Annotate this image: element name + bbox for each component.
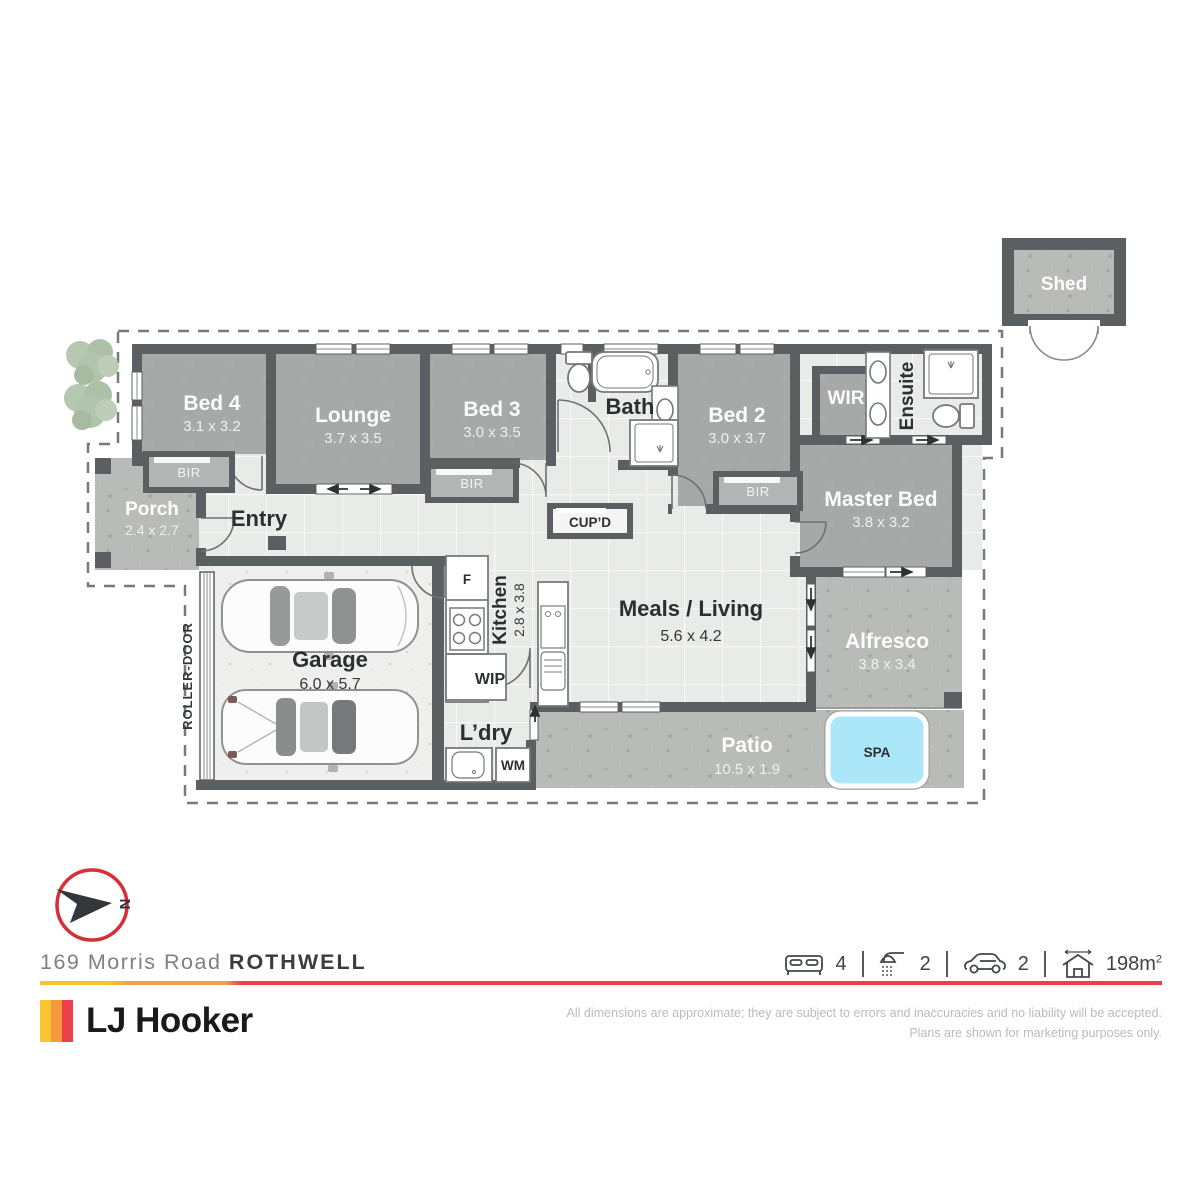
label-entry: Entry [231,506,288,531]
tree-icons [64,339,119,430]
address-suburb: ROTHWELL [229,950,367,974]
dims-lounge: 3.7 x 3.5 [324,430,382,447]
label-bir-bed2: BIR [746,484,769,499]
roller-door [200,572,214,780]
dims-garage: 6.0 x 5.7 [299,676,360,693]
brand-logo: LJ Hooker [40,1000,253,1042]
brand-gradient-rule [40,981,1162,985]
dims-patio: 10.5 x 1.9 [714,761,780,778]
laundry-tub [446,748,492,782]
cars-count: 2 [1018,953,1029,976]
disclaimer-line2: Plans are shown for marketing purposes o… [562,1023,1162,1043]
shed [1002,238,1126,360]
compass-north-label: N [116,899,133,910]
dims-master: 3.8 x 3.2 [852,514,910,531]
label-wir: WIR [828,388,865,409]
car-sports [222,682,418,772]
cooktop [450,608,484,650]
floorplan-drawing: Shed Bed 4 3.1 x 3.2 Lounge 3.7 x 3.5 Be… [0,0,1200,940]
dims-bed4: 3.1 x 3.2 [183,418,241,435]
wc-toilet [566,352,592,392]
ensuite-toilet [933,404,974,428]
kitchen-island [538,582,568,706]
label-ensuite: Ensuite [897,362,918,431]
baths-count: 2 [920,953,931,976]
disclaimer: All dimensions are approximate; they are… [562,1003,1162,1043]
label-master: Master Bed [824,488,937,511]
label-bath: Bath [606,394,655,419]
label-cupboard: CUP’D [569,515,611,530]
car-icon [963,950,1007,978]
house-area-icon [1061,948,1095,980]
bed-icon [784,950,824,978]
brand-logo-text: LJ Hooker [86,1000,253,1042]
label-patio: Patio [721,734,772,757]
shower-icon [879,949,909,979]
ensuite-shower [924,350,978,398]
label-bed4: Bed 4 [183,392,241,415]
dims-porch: 2.4 x 2.7 [125,522,179,538]
label-spa: SPA [864,745,891,760]
label-kitchen: Kitchen [490,575,511,645]
dims-bed2: 3.0 x 3.7 [708,430,766,447]
label-bir-bed4: BIR [177,465,200,480]
label-fridge: F [463,572,471,587]
bathtub [592,352,658,392]
bath-shower [630,420,678,466]
compass: N [40,858,160,958]
dims-bed3: 3.0 x 3.5 [463,424,521,441]
label-wip: WIP [475,671,506,688]
floorplan-page: Shed Bed 4 3.1 x 3.2 Lounge 3.7 x 3.5 Be… [0,0,1200,1200]
north-arrow-icon [56,889,112,923]
label-alfresco: Alfresco [845,630,929,653]
property-summary: 4 2 2 198m2 [784,948,1162,980]
label-garage: Garage [292,647,368,672]
address-street: 169 Morris Road [40,950,221,974]
floor-area-sup: 2 [1156,953,1162,965]
dims-meals-living: 5.6 x 4.2 [660,628,721,645]
label-shed: Shed [1041,274,1087,295]
address-line: 169 Morris Road ROTHWELL [40,950,367,975]
label-bir-bed3: BIR [460,476,483,491]
label-roller-door: ROLLER-DOOR [180,622,195,730]
ensuite-vanity [866,352,890,438]
brand-logo-bars-icon [40,1000,73,1042]
label-bed3: Bed 3 [463,398,520,421]
label-porch: Porch [125,499,179,520]
label-lounge: Lounge [315,404,391,427]
summary-divider [1044,951,1046,977]
label-meals-living: Meals / Living [619,596,763,621]
disclaimer-line1: All dimensions are approximate; they are… [562,1003,1162,1023]
beds-count: 4 [835,953,846,976]
floor-area: 198m2 [1106,953,1162,976]
label-wm: WM [501,758,525,773]
summary-divider [862,951,864,977]
label-laundry: L’dry [460,720,513,745]
dims-kitchen: 2.8 x 3.8 [511,583,527,637]
summary-divider [946,951,948,977]
label-bed2: Bed 2 [708,404,765,427]
dims-alfresco: 3.8 x 3.4 [858,656,916,673]
floor-area-value: 198m [1106,953,1156,975]
